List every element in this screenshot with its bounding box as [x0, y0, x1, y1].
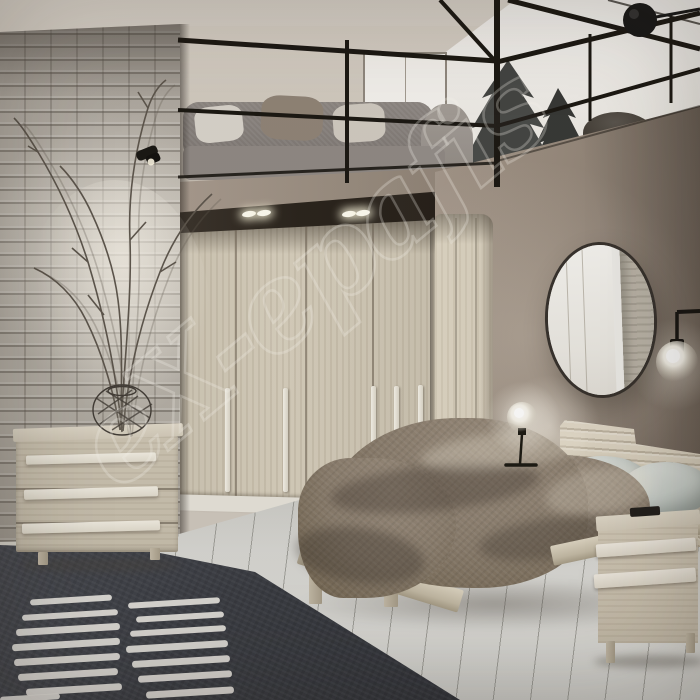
rug-stripe [132, 655, 230, 668]
rug-stripe [128, 597, 220, 609]
wardrobe-door-seam [235, 230, 237, 510]
wall-mirror [542, 240, 659, 400]
rug-stripe [18, 668, 118, 681]
wardrobe-handle [283, 388, 288, 492]
nightstand-leg [686, 633, 695, 653]
mirror-reflection-brick [620, 243, 657, 394]
rug-stripe [16, 623, 120, 636]
sofa-pillow-white [193, 104, 245, 145]
sofa-pillow-grey [332, 102, 387, 144]
bedroom-photo: eX-epafis [0, 0, 700, 700]
rug-stripe [14, 653, 120, 666]
nightstand-right [594, 505, 700, 670]
rug-stripe [12, 638, 120, 652]
rug-stripe [126, 640, 228, 653]
rug-stripe [130, 625, 226, 637]
rug-stripe [30, 595, 112, 606]
wardrobe-door-seam [305, 226, 307, 510]
wardrobe-handle [225, 388, 230, 492]
dresser-leg [150, 548, 160, 560]
rug-stripe [138, 670, 232, 683]
sofa-pillow-brown [260, 94, 324, 141]
rug-stripe [136, 611, 224, 622]
dresser-leg [38, 552, 48, 565]
rug-stripe [22, 609, 118, 621]
rug-stripe [146, 686, 234, 698]
dresser [10, 420, 188, 570]
rug-stripe [0, 693, 60, 700]
mirror-reflection-panels [545, 245, 616, 397]
nightstand-leg [606, 641, 615, 663]
